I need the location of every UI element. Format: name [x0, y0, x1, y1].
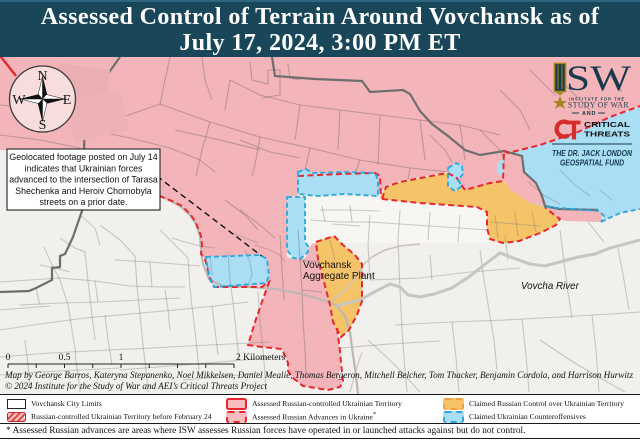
svg-text:STUDY OF WAR: STUDY OF WAR: [568, 100, 629, 110]
svg-text:© 2024 Institute for the Study: © 2024 Institute for the Study of War an…: [5, 381, 268, 391]
svg-text:2 Kilometers: 2 Kilometers: [236, 353, 286, 363]
svg-text:Map by George Barros, Kateryna: Map by George Barros, Kateryna Stepanenk…: [4, 370, 633, 380]
svg-text:Aggregate Plant: Aggregate Plant: [303, 271, 375, 282]
svg-text:streets on a prior date.: streets on a prior date.: [39, 197, 127, 207]
svg-text:N: N: [37, 69, 47, 84]
svg-text:Shechenka and Heroiv Chornobyl: Shechenka and Heroiv Chornobyla: [15, 186, 152, 196]
svg-text:Vovcha River: Vovcha River: [521, 281, 580, 292]
svg-text:W: W: [12, 93, 26, 108]
svg-text:indicates that Ukrainian force: indicates that Ukrainian forces: [25, 163, 143, 173]
svg-text:AND: AND: [582, 111, 596, 117]
svg-text:0: 0: [6, 353, 11, 363]
svg-text:THREATS: THREATS: [584, 130, 630, 139]
svg-text:Vovchansk: Vovchansk: [303, 260, 352, 271]
svg-text:S: S: [39, 118, 47, 133]
svg-text:SW: SW: [566, 58, 631, 98]
svg-text:THE DR. JACK LONDON: THE DR. JACK LONDON: [552, 149, 633, 158]
svg-text:0.5: 0.5: [59, 353, 71, 363]
svg-text:Geolocated footage posted on J: Geolocated footage posted on July 14: [9, 152, 157, 162]
svg-text:CRITICAL: CRITICAL: [584, 120, 630, 129]
svg-text:1: 1: [119, 353, 124, 363]
svg-text:E: E: [63, 93, 72, 108]
svg-text:GEOSPATIAL FUND: GEOSPATIAL FUND: [560, 159, 624, 168]
svg-text:advanced to the intersection o: advanced to the intersection of Tarasa: [9, 175, 158, 185]
